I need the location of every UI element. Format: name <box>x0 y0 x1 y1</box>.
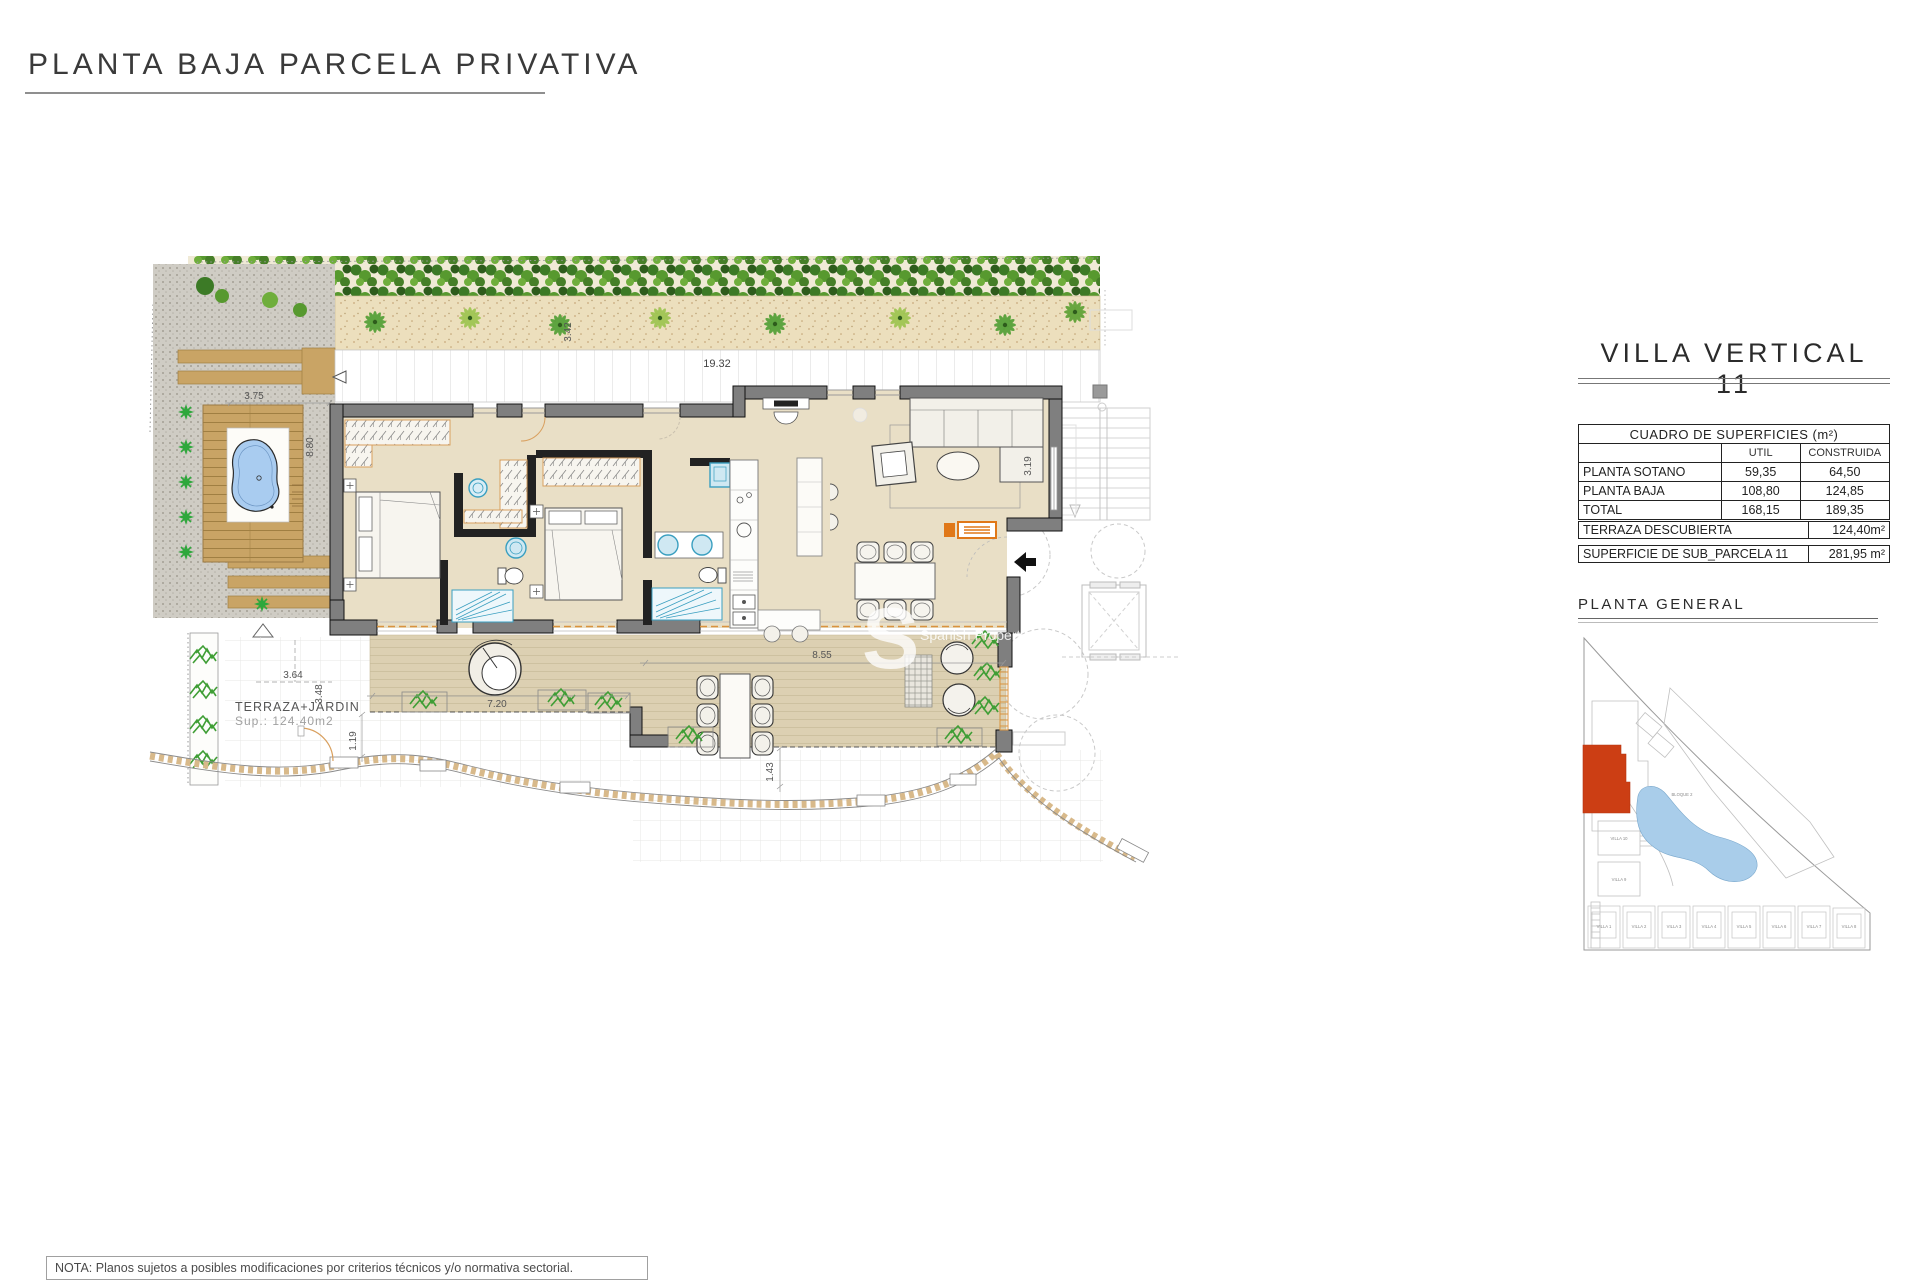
svg-text:3.75: 3.75 <box>244 391 264 402</box>
planta-general-label: PLANTA GENERAL <box>1578 596 1745 613</box>
surfaces-table: CUADRO DE SUPERFICIES (m²) UTIL CONSTRUI… <box>1578 424 1890 520</box>
svg-text:VILLA 8: VILLA 8 <box>1842 924 1857 929</box>
terraza-sup-label: Sup.: 124.40m2 <box>235 714 334 728</box>
svg-text:3.42: 3.42 <box>563 322 574 342</box>
neighbor-stairs <box>1062 403 1150 520</box>
planta-general-underline <box>1578 618 1878 623</box>
entrance-arrow-icon <box>1014 552 1036 572</box>
site-plan-thumbnail: BLOQUE 2 VILLA 10 VILLA 9 VILLA 1 VILLA … <box>1578 626 1890 960</box>
page-title: PLANTA BAJA PARCELA PRIVATIVA <box>28 48 641 82</box>
svg-text:VILLA 5: VILLA 5 <box>1737 924 1752 929</box>
svg-text:3.48: 3.48 <box>314 684 325 704</box>
svg-text:VILLA 9: VILLA 9 <box>1612 877 1627 882</box>
surfaces-header: CUADRO DE SUPERFICIES (m²) <box>1579 425 1890 444</box>
sofa <box>910 398 1043 447</box>
table-row: PLANTA SOTANO 59,35 64,50 <box>1579 463 1890 482</box>
svg-text:Spanish Property: Spanish Property <box>920 627 1027 643</box>
table-row: PLANTA BAJA 108,80 124,85 <box>1579 482 1890 501</box>
svg-text:3.64: 3.64 <box>283 670 303 681</box>
bloque2-label: BLOQUE 2 <box>1672 792 1694 797</box>
floor-plan-drawing: 19.32 <box>130 195 1190 895</box>
svg-text:1.19: 1.19 <box>348 731 359 751</box>
coffee-table <box>937 452 979 480</box>
terraza-jardin-label: TERRAZA+JARDIN <box>235 700 360 714</box>
svg-text:1.43: 1.43 <box>765 762 776 782</box>
col-construida: CONSTRUIDA <box>1800 444 1889 463</box>
villa-11-highlight <box>1583 745 1630 813</box>
svg-text:7.20: 7.20 <box>487 699 507 710</box>
sand-strip <box>335 296 1100 350</box>
note-text: NOTA: Planos sujetos a posibles modifica… <box>55 1261 573 1275</box>
villa-title: VILLA VERTICAL 11 <box>1578 338 1890 400</box>
svg-text:VILLA 1: VILLA 1 <box>1597 924 1612 929</box>
title-underline <box>25 92 545 94</box>
outdoor-dining <box>697 674 773 758</box>
svg-text:VILLA 10: VILLA 10 <box>1611 836 1629 841</box>
svg-text:S: S <box>862 591 919 687</box>
svg-text:VILLA 7: VILLA 7 <box>1807 924 1822 929</box>
elevator <box>1082 582 1146 660</box>
svg-text:VILLA 3: VILLA 3 <box>1667 924 1682 929</box>
svg-text:VILLA 6: VILLA 6 <box>1772 924 1787 929</box>
svg-text:VILLA 4: VILLA 4 <box>1702 924 1717 929</box>
villa-title-underline <box>1578 378 1890 384</box>
svg-text:8.55: 8.55 <box>812 650 832 661</box>
svg-text:VILLA 2: VILLA 2 <box>1632 924 1647 929</box>
dim-19-32: 19.32 <box>703 358 731 370</box>
terraza-descubierta-row: TERRAZA DESCUBIERTA 124,40m² <box>1578 521 1890 539</box>
plunge-pool <box>232 440 279 512</box>
plan-sheet: PLANTA BAJA PARCELA PRIVATIVA <box>0 0 1920 1280</box>
armchair <box>872 442 916 486</box>
sideboard <box>944 522 996 538</box>
subparcela-row: SUPERFICIE DE SUB_PARCELA 11 281,95 m² <box>1578 545 1890 563</box>
table-row: TOTAL 168,15 189,35 <box>1579 501 1890 520</box>
col-util: UTIL <box>1721 444 1800 463</box>
svg-text:8.80: 8.80 <box>305 437 316 457</box>
note-box: NOTA: Planos sujetos a posibles modifica… <box>46 1256 648 1280</box>
svg-text:3.19: 3.19 <box>1023 456 1034 476</box>
